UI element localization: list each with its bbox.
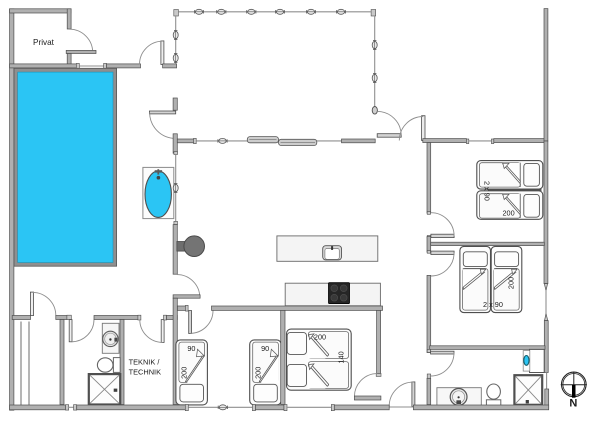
svg-text:90: 90	[261, 344, 269, 353]
svg-text:200: 200	[506, 277, 515, 289]
svg-text:2 x 90: 2 x 90	[483, 300, 503, 309]
svg-text:N: N	[569, 398, 577, 410]
svg-text:200: 200	[180, 367, 189, 379]
svg-text:200: 200	[314, 332, 326, 341]
svg-text:90: 90	[187, 344, 195, 353]
svg-text:200: 200	[253, 367, 262, 379]
svg-text:200: 200	[503, 209, 515, 218]
svg-text:2 x 90: 2 x 90	[482, 181, 491, 201]
svg-text:140: 140	[336, 351, 345, 363]
svg-text:Privat: Privat	[33, 38, 55, 47]
svg-text:TEKNIK /: TEKNIK /	[129, 358, 161, 367]
svg-text:TECHNIK: TECHNIK	[129, 367, 162, 376]
